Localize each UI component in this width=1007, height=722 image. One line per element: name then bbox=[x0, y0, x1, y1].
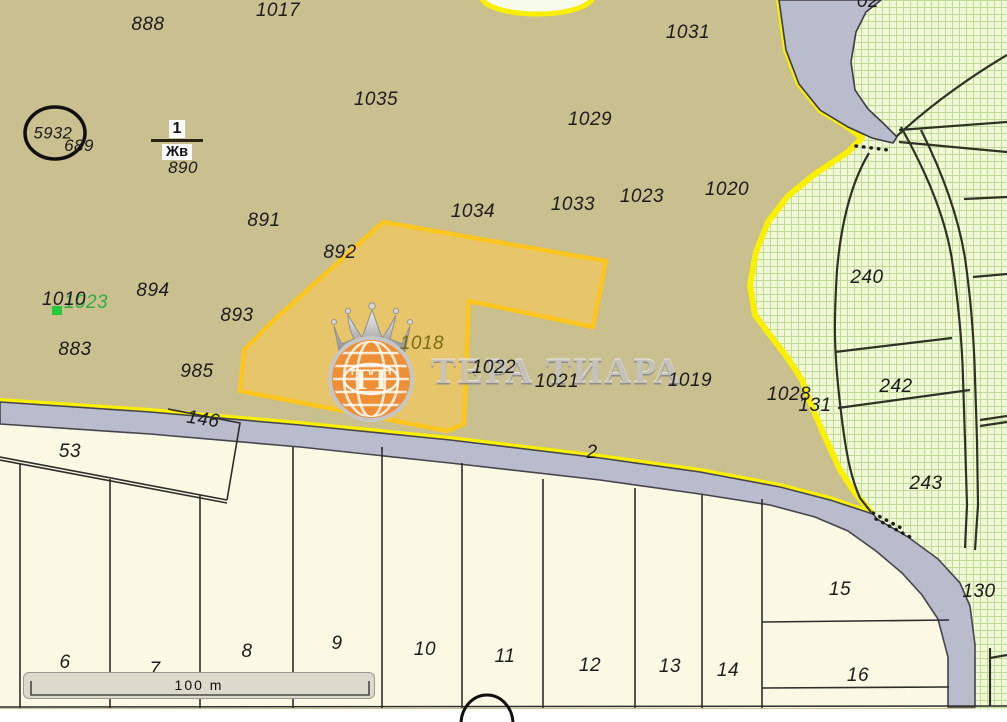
parcel-label-1021: 1021 bbox=[535, 371, 579, 393]
parcel-label-883: 883 bbox=[58, 339, 91, 361]
parcel-label-891: 891 bbox=[247, 210, 280, 232]
fraction-numerator: 1 bbox=[169, 120, 186, 138]
parcel-label-6: 6 bbox=[59, 652, 70, 674]
parcel-label-14: 14 bbox=[717, 660, 739, 682]
map-canvas[interactable]: ТТ ТЕРА ТИАРА 1 Жв 888101710311035102959… bbox=[0, 0, 1007, 722]
parcel-label-3: 3 bbox=[0, 193, 1, 215]
scale-bar-label: 100 m bbox=[24, 677, 374, 693]
parcel-label-1035: 1035 bbox=[354, 89, 398, 111]
parcel-label-2: 2 bbox=[586, 442, 597, 464]
parcel-label-243: 243 bbox=[909, 473, 942, 495]
parcel-label-1033: 1033 bbox=[551, 194, 595, 216]
parcel-label-240: 240 bbox=[850, 267, 883, 289]
parcel-label-9: 9 bbox=[331, 633, 342, 655]
parcel-label-1029: 1029 bbox=[568, 109, 612, 131]
parcel-label-1019: 1019 bbox=[668, 370, 712, 392]
parcel-label-1034: 1034 bbox=[451, 201, 495, 223]
parcel-label-894: 894 bbox=[136, 280, 169, 302]
parcel-label-131: 131 bbox=[798, 395, 831, 417]
parcel-label-53: 53 bbox=[59, 441, 81, 463]
land-use-fraction-label: 1 Жв bbox=[149, 120, 205, 161]
parcel-label-12: 12 bbox=[579, 655, 601, 677]
scale-bar: 100 m bbox=[23, 672, 375, 699]
fraction-bar bbox=[151, 139, 203, 142]
parcel-label-8: 8 bbox=[241, 641, 252, 663]
parcel-label-16: 16 bbox=[847, 665, 869, 687]
parcel-label-1022: 1022 bbox=[472, 357, 516, 379]
parcel-label-10: 10 bbox=[414, 639, 436, 661]
parcel-label-893: 893 bbox=[220, 305, 253, 327]
parcel-label-1010: 1010 bbox=[42, 289, 86, 311]
parcel-label-242: 242 bbox=[879, 376, 912, 398]
parcel-label-689: 689 bbox=[64, 136, 94, 156]
parcel-label-11: 11 bbox=[495, 646, 516, 668]
parcel-label-888: 888 bbox=[131, 14, 164, 36]
watermark-monogram: ТТ bbox=[351, 363, 391, 396]
parcel-label-1023: 1023 bbox=[620, 186, 664, 208]
parcel-label-130: 130 bbox=[962, 581, 995, 603]
parcel-label-1017: 1017 bbox=[256, 0, 300, 22]
parcel-label-1018: 1018 bbox=[400, 333, 444, 355]
parcel-label-985: 985 bbox=[180, 361, 213, 383]
parcel-label-890: 890 bbox=[168, 158, 198, 178]
parcel-label-892: 892 bbox=[323, 242, 356, 264]
parcel-label-1031: 1031 bbox=[666, 22, 710, 44]
parcel-label-02: 02 bbox=[857, 0, 879, 13]
parcel-label-15: 15 bbox=[829, 579, 851, 601]
map-bottom-margin bbox=[0, 709, 1007, 722]
parcel-label-1020: 1020 bbox=[705, 179, 749, 201]
parcel-label-13: 13 bbox=[659, 656, 681, 678]
